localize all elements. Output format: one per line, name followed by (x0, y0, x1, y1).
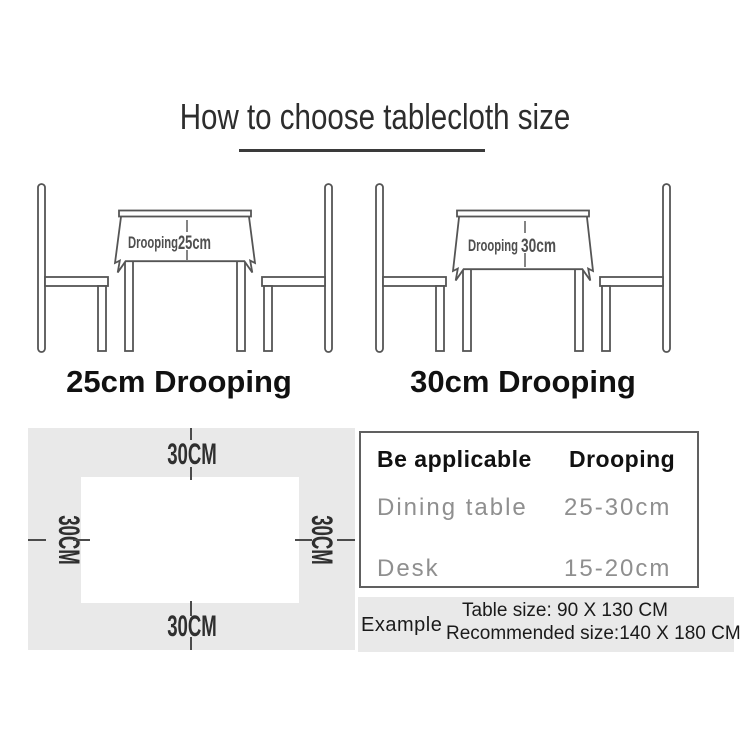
spec-header-drooping: Drooping (569, 446, 675, 473)
tablecloth-infographic: How to choose tablecloth size (0, 0, 750, 750)
caption-30cm-drooping: 30cm Drooping (410, 364, 636, 400)
dimension-tick (190, 428, 192, 440)
tabletop-edge (457, 211, 589, 217)
tabletop-plan-rect (81, 477, 299, 603)
margin-label-top: 30CM (167, 438, 217, 472)
spec-row-desk-name: Desk (377, 555, 440, 583)
tabletop-edge (119, 211, 251, 217)
example-panel: Example Table size: 90 X 130 CM Recommen… (358, 597, 734, 652)
dimension-tick (295, 539, 312, 541)
drooping-value-left: 25cm (178, 233, 211, 254)
spec-table: Be applicable Drooping Dining table 25-3… (359, 431, 699, 588)
dimension-tick (28, 539, 46, 541)
drooping-value-right: 30cm (521, 236, 556, 257)
chair-back-post (325, 184, 332, 352)
table-leg (463, 258, 471, 351)
table-30cm (453, 211, 593, 352)
chair-mirrored (262, 184, 332, 352)
example-table-size: Table size: 90 X 130 CM (462, 600, 668, 622)
dimension-tick (73, 539, 90, 541)
tablecloth-diagrams: Drooping 25cm Drooping 30cm (0, 0, 750, 420)
spec-header-applicable: Be applicable (377, 446, 532, 473)
chair-seat (262, 277, 325, 286)
spec-row-dining-name: Dining table (377, 494, 528, 522)
margin-diagram-panel: 30CM 30CM 30CM 30CM (28, 428, 355, 650)
dimension-tick (190, 637, 192, 650)
spec-row-dining-value: 25-30cm (564, 494, 671, 522)
dimension-tick (190, 467, 192, 480)
spec-row-desk-value: 15-20cm (564, 555, 671, 583)
drooping-annotation-right: Drooping (468, 236, 518, 255)
chair-front-leg (264, 286, 272, 351)
chair-front-leg (98, 286, 106, 351)
table-leg (125, 250, 133, 351)
example-label: Example (361, 614, 442, 637)
chair-pair-left (38, 184, 332, 352)
margin-label-bottom: 30CM (167, 610, 217, 644)
caption-25cm-drooping: 25cm Drooping (66, 364, 292, 400)
chair-back-post (38, 184, 45, 352)
drooping-annotation-left: Drooping (128, 233, 178, 252)
table-25cm (115, 211, 255, 352)
table-leg (237, 250, 245, 351)
table-leg (575, 258, 583, 351)
dimension-tick (337, 539, 355, 541)
dimension-tick (190, 601, 192, 616)
chair-seat (45, 277, 108, 286)
example-recommended-size: Recommended size:140 X 180 CM (446, 623, 741, 645)
